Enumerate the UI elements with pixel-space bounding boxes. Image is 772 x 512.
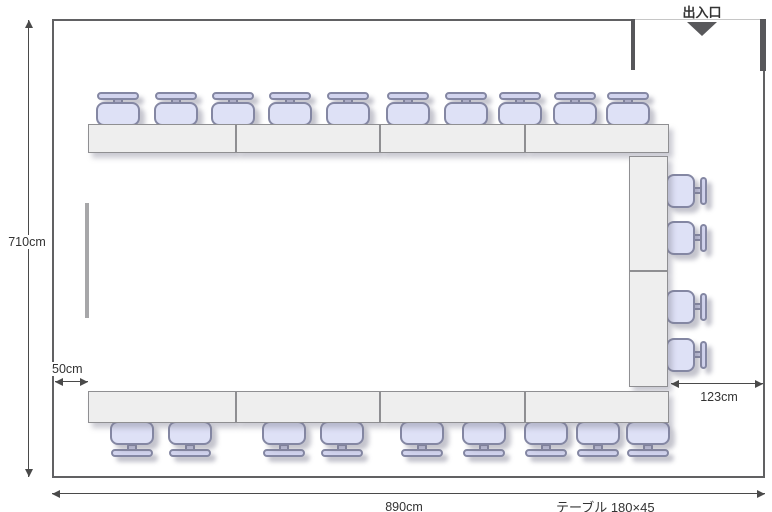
- chair-backrest: [321, 449, 363, 457]
- chair-seat: [576, 421, 620, 445]
- chair-seat: [626, 421, 670, 445]
- table: [380, 391, 525, 423]
- chair-backrest: [700, 177, 707, 205]
- chair-backrest: [401, 449, 443, 457]
- chair-seat: [498, 102, 542, 126]
- table: [236, 391, 380, 423]
- chair-backrest: [554, 92, 596, 100]
- arrow-down-icon: [25, 469, 33, 477]
- door-jamb-right: [760, 19, 766, 71]
- table: [88, 124, 236, 153]
- chair: [211, 92, 255, 126]
- chair-backrest: [700, 224, 707, 252]
- table: [525, 391, 669, 423]
- chair-backrest: [387, 92, 429, 100]
- chair: [553, 92, 597, 126]
- chair-seat: [96, 102, 140, 126]
- chair-seat: [462, 421, 506, 445]
- dimension-label: 123cm: [689, 390, 749, 404]
- arrow-up-icon: [25, 20, 33, 28]
- chair-seat: [666, 290, 695, 324]
- chair: [110, 421, 154, 458]
- whiteboard: [85, 203, 89, 318]
- chair-seat: [666, 338, 695, 372]
- door-jamb-left: [631, 19, 635, 70]
- entrance-arrow-icon: [687, 22, 717, 36]
- chair-seat: [110, 421, 154, 445]
- chair: [606, 92, 650, 126]
- chair-seat: [320, 421, 364, 445]
- chair: [262, 421, 306, 458]
- chair-backrest: [463, 449, 505, 457]
- chair: [626, 421, 670, 458]
- floor-plan: 出入口 710cm 890cm 50cm 123cm テーブル 180×45: [0, 0, 772, 512]
- chair-seat: [168, 421, 212, 445]
- chair-seat: [524, 421, 568, 445]
- chair-backrest: [577, 449, 619, 457]
- chair: [154, 92, 198, 126]
- chair: [320, 421, 364, 458]
- chair-seat: [154, 102, 198, 126]
- chair-seat: [386, 102, 430, 126]
- chair-backrest: [700, 341, 707, 369]
- chair-backrest: [700, 293, 707, 321]
- chair: [666, 174, 708, 208]
- arrow-right-icon: [757, 490, 765, 498]
- table: [236, 124, 380, 153]
- arrow-left-icon: [671, 380, 679, 388]
- chair-seat: [606, 102, 650, 126]
- chair-seat: [444, 102, 488, 126]
- chair: [168, 421, 212, 458]
- chair: [666, 290, 708, 324]
- chair: [268, 92, 312, 126]
- chair: [666, 221, 708, 255]
- table: [629, 156, 668, 271]
- chair-seat: [666, 174, 695, 208]
- table-spec-label: テーブル 180×45: [556, 497, 655, 512]
- chair-seat: [268, 102, 312, 126]
- dimension-line: [52, 493, 765, 494]
- chair-backrest: [525, 449, 567, 457]
- table: [88, 391, 236, 423]
- chair-backrest: [627, 449, 669, 457]
- dimension-line: [671, 383, 763, 384]
- chair-backrest: [97, 92, 139, 100]
- chair-backrest: [269, 92, 311, 100]
- arrow-right-icon: [755, 380, 763, 388]
- chair: [462, 421, 506, 458]
- chair-seat: [553, 102, 597, 126]
- chair-seat: [262, 421, 306, 445]
- chair: [444, 92, 488, 126]
- chair-seat: [666, 221, 695, 255]
- chair: [96, 92, 140, 126]
- arrow-right-icon: [80, 378, 88, 386]
- chair-backrest: [169, 449, 211, 457]
- chair: [386, 92, 430, 126]
- chair-seat: [326, 102, 370, 126]
- arrow-left-icon: [52, 490, 60, 498]
- table: [525, 124, 669, 153]
- chair-backrest: [111, 449, 153, 457]
- chair: [666, 338, 708, 372]
- chair: [400, 421, 444, 458]
- chair: [498, 92, 542, 126]
- chair: [524, 421, 568, 458]
- chair: [326, 92, 370, 126]
- dimension-label: 710cm: [3, 235, 51, 249]
- dimension-label: 50cm: [52, 362, 83, 376]
- chair-backrest: [445, 92, 487, 100]
- arrow-left-icon: [55, 378, 63, 386]
- chair-seat: [400, 421, 444, 445]
- chair-backrest: [607, 92, 649, 100]
- table: [380, 124, 525, 153]
- chair-backrest: [499, 92, 541, 100]
- chair: [576, 421, 620, 458]
- chair-backrest: [155, 92, 197, 100]
- dimension-label: 890cm: [354, 500, 454, 512]
- table: [629, 271, 668, 387]
- chair-backrest: [212, 92, 254, 100]
- chair-seat: [211, 102, 255, 126]
- chair-backrest: [263, 449, 305, 457]
- chair-backrest: [327, 92, 369, 100]
- entrance-label: 出入口: [666, 2, 738, 21]
